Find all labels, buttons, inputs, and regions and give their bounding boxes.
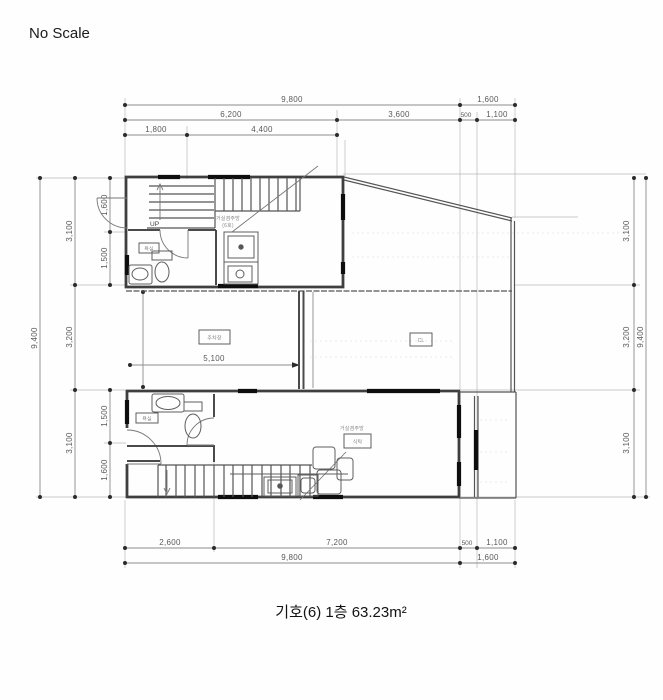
parking-label: 주차장	[207, 335, 222, 342]
upper-kitchenette	[224, 232, 258, 284]
middle-partition-wall	[299, 291, 304, 389]
lower-bath-label: 욕실	[142, 416, 152, 423]
dim-lines-bottom	[125, 548, 515, 563]
dim-interior-5100: 5,100	[203, 354, 225, 363]
living-room-label: 거실겸주방	[340, 425, 364, 432]
upper-toilet	[152, 251, 172, 282]
upper-room-label-line1: 거실겸주방	[216, 215, 240, 222]
dim-lines-top	[125, 105, 515, 135]
dim-left-9400: 9,400	[30, 327, 39, 349]
diagonal-boundary	[344, 177, 512, 221]
middle-band: 주차장 CL	[126, 291, 512, 389]
dim-bottom-7200: 7,200	[326, 538, 348, 547]
dim-right-3200: 3,200	[622, 326, 631, 348]
dim-left-3100a: 3,100	[65, 220, 74, 242]
lower-sofa-cluster	[313, 447, 353, 494]
floor-plan-page: No Scale 기호(6) 1층 63.23m² 9,800 1,600 6,…	[0, 0, 663, 700]
dim-left-1600b: 1,600	[100, 459, 109, 481]
upper-unit: 욕실 UP 거실겸주방 (6호)	[97, 166, 343, 287]
lower-stair-outline	[158, 465, 312, 497]
dim-bottom-2600: 2,600	[159, 538, 181, 547]
dim-left-3200: 3,200	[65, 326, 74, 348]
dimension-labels: 9,800 1,600 6,200 3,600 500 1,100 1,800 …	[30, 95, 645, 562]
dim-bottom-1100: 1,100	[486, 538, 508, 547]
dim-lines-left	[40, 178, 110, 497]
dim-top-1600: 1,600	[477, 95, 499, 104]
lower-toilet	[184, 402, 202, 438]
closet-label: CL	[418, 338, 425, 344]
dim-top-4400: 4,400	[251, 125, 273, 134]
no-scale-note: No Scale	[29, 25, 90, 42]
dim-bottom-500: 500	[462, 540, 473, 547]
dim-top-9800: 9,800	[281, 95, 303, 104]
upper-room-label-line2: (6호)	[222, 223, 234, 229]
dim-left-3100b: 3,100	[65, 432, 74, 454]
dim-right-3100a: 3,100	[622, 220, 631, 242]
dim-left-1600a: 1,600	[100, 194, 109, 216]
dim-right-3100b: 3,100	[622, 432, 631, 454]
dim-top-1800: 1,800	[145, 125, 167, 134]
dim-dots-interior	[128, 290, 145, 389]
right-boundary-wall	[511, 218, 515, 392]
upper-washbasin	[129, 265, 152, 284]
upper-bath-label: 욕실	[144, 246, 154, 253]
dim-left-1500b: 1,500	[100, 405, 109, 427]
upper-stair-treads-right	[224, 178, 296, 211]
lower-kitchen-counter	[230, 474, 348, 496]
lower-extension-walls	[459, 392, 516, 498]
figure-caption: 기호(6) 1층 63.23m²	[275, 604, 406, 621]
dim-top-500: 500	[461, 112, 472, 119]
lower-stair-arrow	[164, 470, 170, 494]
dim-right-9400: 9,400	[636, 326, 645, 348]
dim-bottom-1600: 1,600	[477, 553, 499, 562]
dim-bottom-9800: 9,800	[281, 553, 303, 562]
stairs-up-label: UP	[150, 221, 159, 228]
dim-top-6200: 6,200	[220, 110, 242, 119]
site-boundary	[344, 177, 515, 392]
floor-plan-drawing: No Scale 기호(6) 1층 63.23m² 9,800 1,600 6,…	[0, 0, 663, 700]
lower-washbasin	[152, 394, 184, 412]
upper-stair-treads-left	[149, 186, 214, 218]
dim-dots-bottom	[123, 546, 517, 565]
lower-unit: 욕실 식탁 거실겸주방	[126, 390, 516, 500]
table-label: 식탁	[353, 439, 363, 446]
upper-bathroom-door-arc	[160, 230, 188, 258]
dim-left-1500a: 1,500	[100, 247, 109, 269]
dim-top-3600: 3,600	[388, 110, 410, 119]
dim-top-1100: 1,100	[486, 110, 508, 119]
lower-stair-treads	[166, 465, 310, 497]
